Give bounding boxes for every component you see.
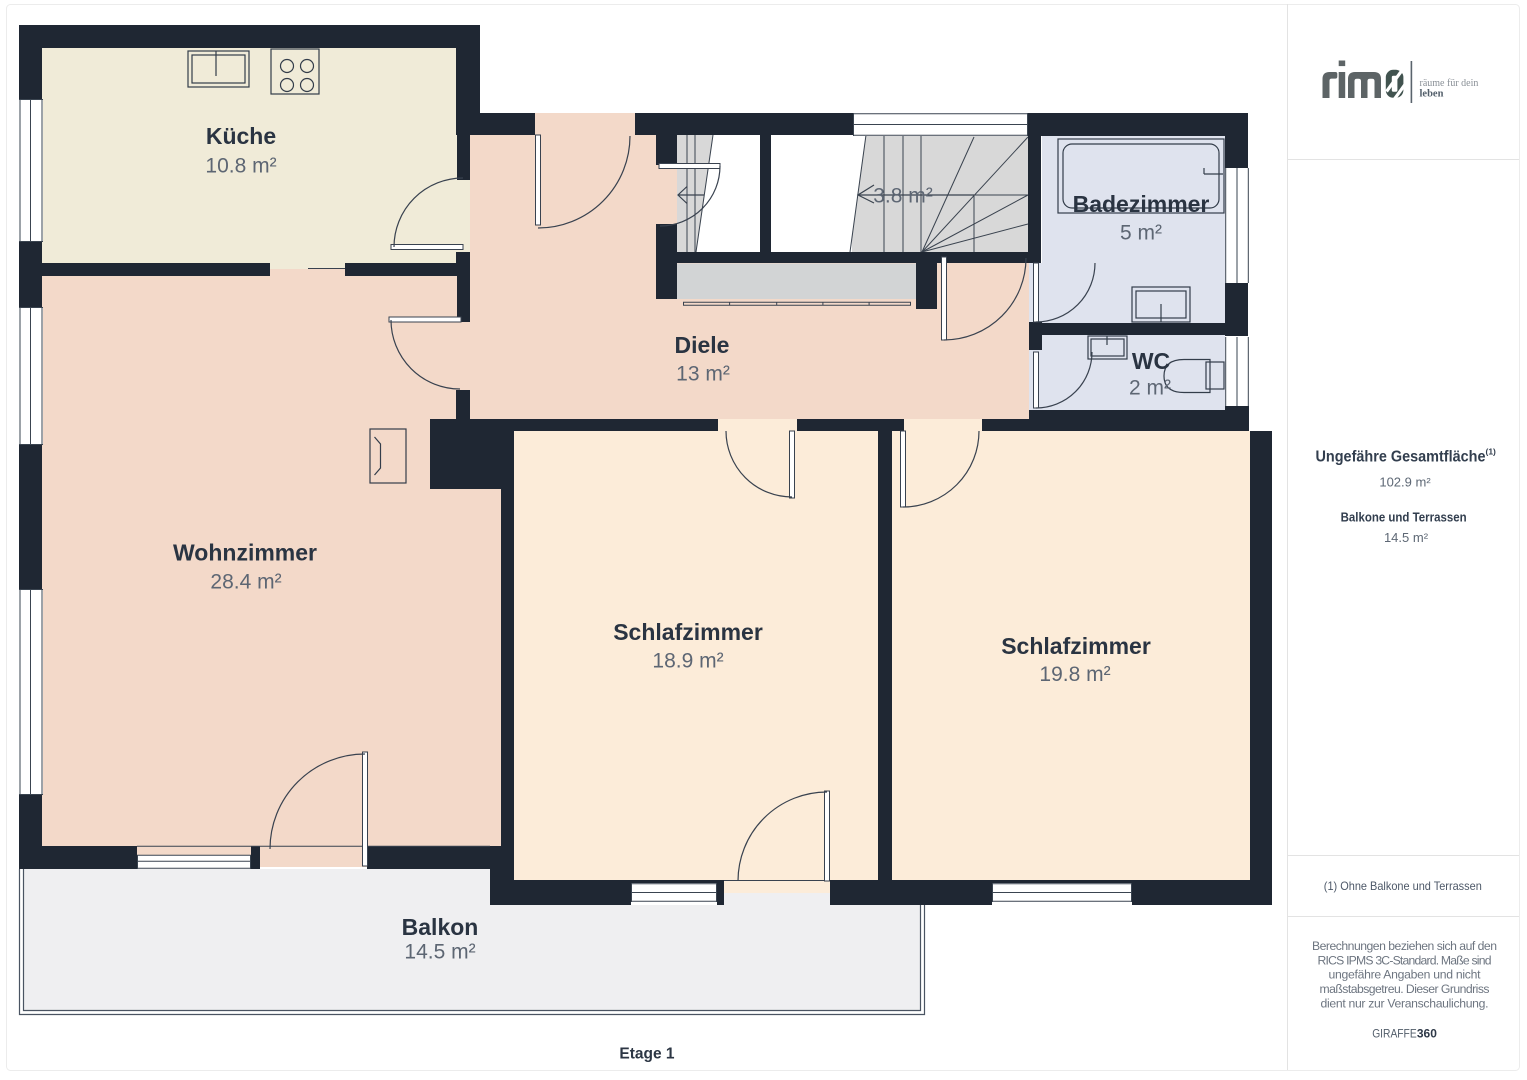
svg-text:leben: leben [1420,89,1444,100]
svg-text:ungefähre Angaben und nicht: ungefähre Angaben und nicht [1329,968,1482,982]
svg-text:Schlafzimmer: Schlafzimmer [1001,633,1151,659]
svg-text:Küche: Küche [206,123,276,149]
svg-text:dient nur zur Veranschaulichun: dient nur zur Veranschaulichung. [1321,997,1489,1011]
svg-text:Etage 1: Etage 1 [619,1046,675,1063]
svg-text:räume für dein: räume für dein [1420,78,1479,89]
svg-text:18.9 m²: 18.9 m² [652,650,723,673]
svg-text:WC: WC [1132,348,1170,374]
svg-text:(1): (1) [1486,447,1497,457]
svg-text:(1) Ohne Balkone und Terrassen: (1) Ohne Balkone und Terrassen [1324,879,1482,893]
svg-text:Ungefähre Gesamtfläche: Ungefähre Gesamtfläche [1316,449,1486,466]
svg-text:14.5 m²: 14.5 m² [404,941,475,964]
svg-text:13 m²: 13 m² [676,363,730,386]
svg-text:maßstabsgetreu. Dieser Grundri: maßstabsgetreu. Dieser Grundriss [1320,982,1490,996]
svg-text:2 m²: 2 m² [1129,377,1171,400]
svg-text:102.9 m²: 102.9 m² [1379,475,1431,490]
svg-text:GIRAFFE: GIRAFFE [1372,1029,1417,1041]
svg-text:Berechnungen beziehen sich auf: Berechnungen beziehen sich auf den [1312,939,1497,953]
svg-text:28.4 m²: 28.4 m² [210,571,281,594]
svg-text:Diele: Diele [675,332,730,358]
svg-text:Schlafzimmer: Schlafzimmer [613,619,763,645]
svg-text:Wohnzimmer: Wohnzimmer [173,540,317,566]
svg-text:Badezimmer: Badezimmer [1073,191,1210,217]
svg-text:14.5 m²: 14.5 m² [1384,530,1429,545]
svg-text:19.8 m²: 19.8 m² [1039,663,1110,686]
svg-text:10.8 m²: 10.8 m² [205,155,276,178]
svg-text:Balkon: Balkon [402,914,479,940]
svg-text:Balkone und Terrassen: Balkone und Terrassen [1341,510,1467,525]
svg-text:3.8 m²: 3.8 m² [873,185,933,208]
svg-text:360: 360 [1417,1029,1437,1041]
svg-text:5 m²: 5 m² [1120,222,1162,245]
svg-text:RICS IPMS 3C-Standard. Maße si: RICS IPMS 3C-Standard. Maße sind [1318,953,1492,967]
